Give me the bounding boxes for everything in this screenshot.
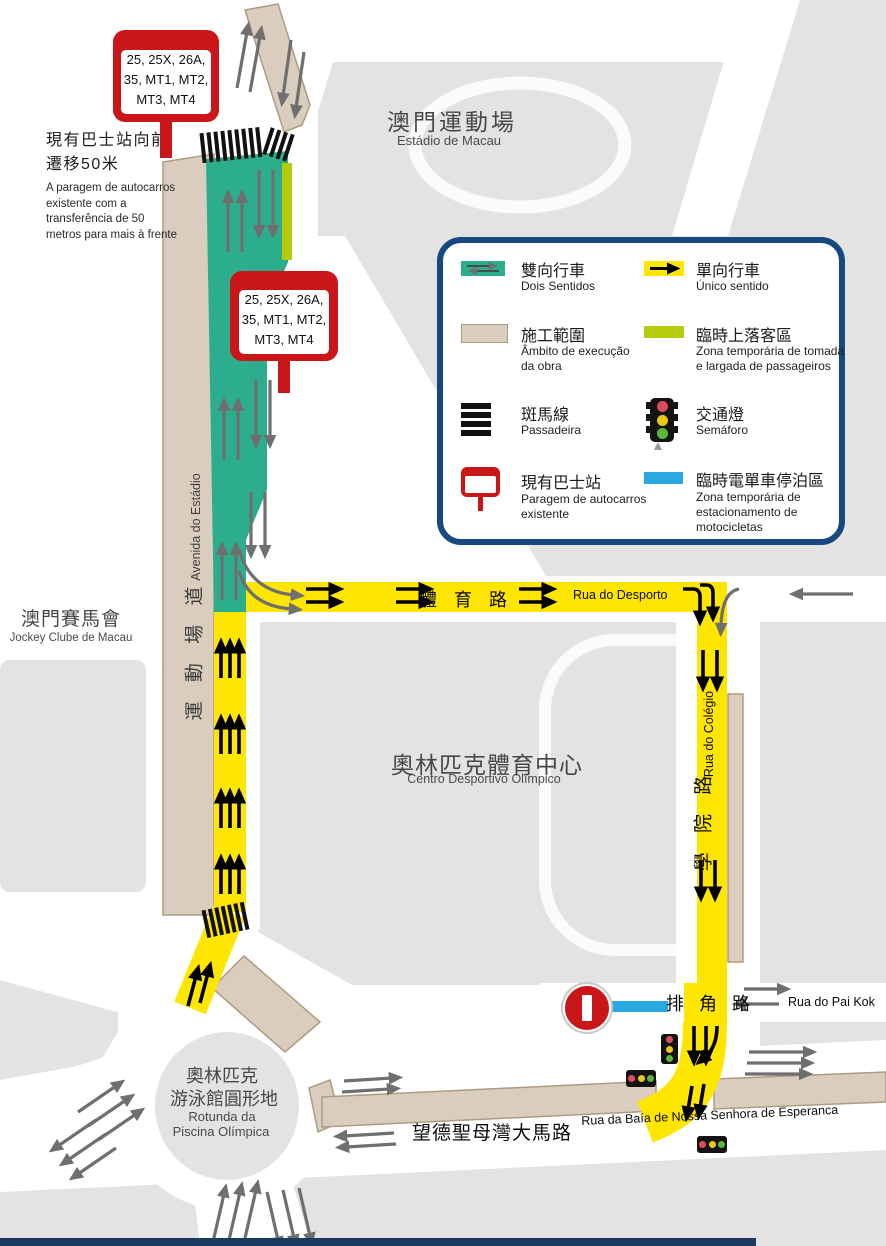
stadium-label-pt: Estádio de Macau bbox=[397, 133, 501, 148]
jockey-club-label-zh: 澳門賽馬會 bbox=[21, 604, 121, 631]
bottom-navy-strip bbox=[0, 1238, 756, 1246]
road-estadio-label-pt: Avenida do Estádio bbox=[189, 473, 203, 581]
legend-construction-pt: Âmbito de execução da obra bbox=[521, 344, 641, 374]
legend-bus-stop-pt: Paragem de autocarros existente bbox=[521, 492, 661, 522]
traffic-light-icon bbox=[661, 1034, 678, 1064]
road-colegio-label-zh: 學 院 路 bbox=[689, 769, 716, 872]
legend-passenger-zone-pt: Zona temporária de tomada e largada de p… bbox=[696, 344, 846, 374]
bus-routes-text: 25, 25X, 26A,35, MT1, MT2,MT3, MT4 bbox=[121, 50, 211, 114]
one-way-swatch bbox=[644, 261, 684, 276]
legend-crosswalk-pt: Passadeira bbox=[521, 423, 581, 438]
bus-stop-sign-north: 25, 25X, 26A,35, MT1, MT2,MT3, MT4 bbox=[113, 30, 219, 122]
traffic-light-icon bbox=[626, 1070, 656, 1087]
bus-routes-text: 25, 25X, 26A,35, MT1, MT2,MT3, MT4 bbox=[239, 290, 329, 354]
road-esperanca-label-zh: 望德聖母灣大馬路 bbox=[412, 1118, 572, 1145]
road-desporto-label-pt: Rua do Desporto bbox=[573, 588, 668, 602]
legend-panel: 雙向行車 Dois Sentidos 單向行車 Único sentido 施工… bbox=[437, 237, 845, 545]
legend-moto-parking-pt: Zona temporária de estacionamento de mot… bbox=[696, 490, 846, 535]
moto-parking-swatch bbox=[644, 472, 683, 484]
road-paikok-label-zh: 排 角 路 bbox=[666, 990, 755, 1016]
olympic-center-label-pt: Centro Desportivo Olímpico bbox=[407, 772, 561, 786]
sign-pole bbox=[160, 122, 172, 158]
road-colegio-label-pt: Rua do Colégio bbox=[702, 691, 716, 777]
roundabout-label-pt1: Rotunda da bbox=[188, 1109, 255, 1124]
construction-swatch bbox=[461, 324, 508, 343]
legend-one-way-pt: Único sentido bbox=[696, 279, 769, 294]
traffic-light-base bbox=[654, 442, 662, 450]
legend-moto-parking-zh: 臨時電單車停泊區 bbox=[696, 467, 824, 491]
legend-two-way-zh: 雙向行車 bbox=[521, 257, 585, 281]
legend-traffic-light-zh: 交通燈 bbox=[696, 401, 744, 425]
passenger-zone-swatch bbox=[644, 326, 684, 338]
road-paikok-label-pt: Rua do Pai Kok bbox=[788, 995, 875, 1009]
jockey-club-label-pt: Jockey Clube de Macau bbox=[10, 632, 133, 644]
no-entry-icon bbox=[563, 984, 611, 1032]
traffic-arrangement-map: 澳門運動場 Estádio de Macau 澳門賽馬會 Jockey Club… bbox=[0, 0, 886, 1246]
crosswalk-icon bbox=[461, 403, 491, 439]
legend-traffic-light-pt: Semáforo bbox=[696, 423, 748, 438]
legend-one-way-zh: 單向行車 bbox=[696, 257, 760, 281]
traffic-light-icon bbox=[697, 1136, 727, 1153]
legend-crosswalk-zh: 斑馬線 bbox=[521, 401, 569, 425]
roundabout-label-pt2: Piscina Olímpica bbox=[173, 1124, 270, 1139]
legend-two-way-pt: Dois Sentidos bbox=[521, 279, 595, 294]
bus-stop-note-pt: A paragem de autocarros existente com a … bbox=[46, 181, 180, 243]
two-way-zone bbox=[206, 151, 288, 612]
roundabout-label-zh2: 游泳館圓形地 bbox=[170, 1085, 278, 1111]
stadium-label-zh: 澳門運動場 bbox=[387, 103, 517, 137]
road-estadio-label-zh: 運 動 場 道 bbox=[180, 580, 207, 721]
legend-passenger-zone-zh: 臨時上落客區 bbox=[696, 322, 792, 346]
two-way-swatch bbox=[461, 261, 505, 276]
traffic-light-icon bbox=[650, 398, 674, 442]
legend-construction-zh: 施工範圍 bbox=[521, 322, 585, 346]
road-desporto-label-zh: 體 育 路 bbox=[419, 586, 513, 612]
bus-stop-icon bbox=[461, 467, 500, 497]
bus-stop-sign-south: 25, 25X, 26A,35, MT1, MT2,MT3, MT4 bbox=[230, 271, 338, 361]
passenger-zone-strip bbox=[282, 163, 292, 260]
sign-pole bbox=[278, 361, 290, 393]
moto-parking-strip bbox=[606, 1001, 668, 1012]
legend-bus-stop-zh: 現有巴士站 bbox=[521, 469, 601, 493]
